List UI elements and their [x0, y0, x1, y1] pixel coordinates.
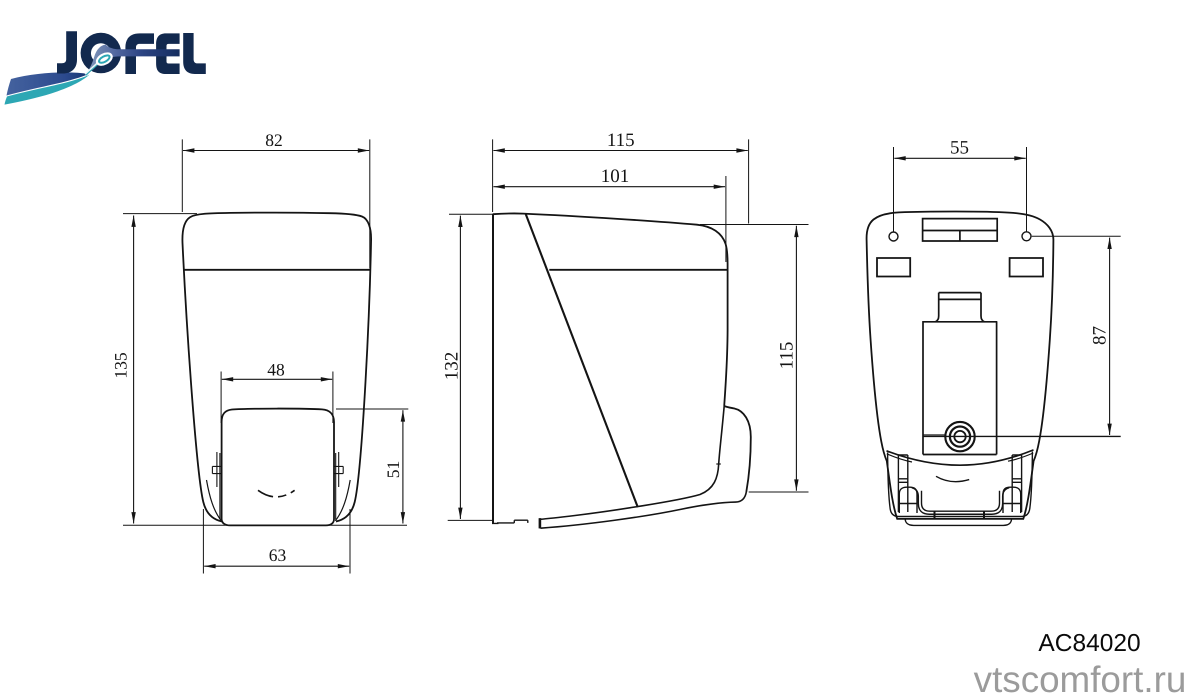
svg-text:101: 101	[601, 166, 630, 187]
svg-text:vtscomfort.ru: vtscomfort.ru	[974, 659, 1187, 700]
svg-text:115: 115	[777, 342, 798, 370]
svg-text:132: 132	[442, 352, 463, 381]
svg-text:82: 82	[265, 130, 283, 150]
svg-text:AC84020: AC84020	[1038, 630, 1140, 657]
svg-text:48: 48	[267, 359, 285, 379]
svg-text:87: 87	[1090, 326, 1111, 345]
svg-text:135: 135	[111, 352, 131, 379]
svg-text:51: 51	[383, 461, 403, 479]
svg-text:115: 115	[607, 130, 635, 151]
svg-text:63: 63	[269, 545, 287, 565]
svg-text:55: 55	[950, 137, 969, 158]
